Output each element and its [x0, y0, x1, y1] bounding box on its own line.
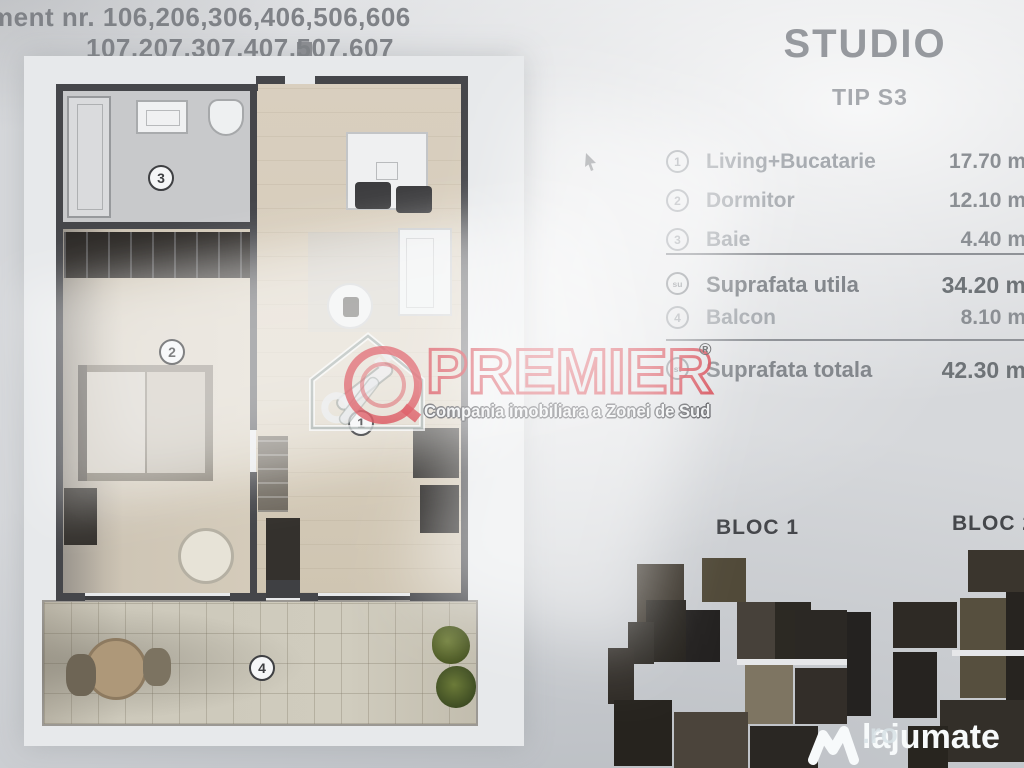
wall	[300, 593, 318, 601]
building-silhouette	[614, 700, 672, 766]
room-area: 8.10 m	[840, 306, 1024, 330]
toilet	[208, 99, 244, 136]
building-silhouette	[847, 612, 871, 716]
building-silhouette	[893, 652, 937, 718]
building-silhouette	[686, 610, 720, 662]
wall	[230, 593, 266, 601]
round-armchair	[178, 528, 234, 584]
wall	[56, 222, 257, 229]
building-gap	[737, 659, 847, 665]
balcony-chair	[66, 654, 96, 696]
lajumate-icon	[806, 722, 860, 766]
dining-chair	[396, 186, 432, 213]
wall	[315, 76, 468, 84]
balcony-chair	[143, 648, 171, 686]
wall	[56, 593, 85, 601]
wall	[256, 76, 285, 84]
building-silhouette	[702, 558, 746, 602]
total-row: st Suprafata totala 42.30 m	[666, 355, 1024, 387]
building-silhouette	[674, 712, 748, 768]
room-area: 4.40 m	[840, 228, 1024, 252]
building-silhouette	[608, 648, 634, 704]
room-row: 4 Balcon 8.10 m	[666, 304, 1024, 336]
plant	[432, 626, 470, 664]
cabinet	[266, 518, 300, 580]
bloc-1-label: BLOC 1	[716, 516, 799, 540]
room-number-badge-balcony: 4	[249, 655, 275, 681]
plant	[436, 666, 476, 708]
apartment-numbers-line1: ment nr. 106,206,306,406,506,606	[0, 2, 411, 33]
sink	[136, 100, 188, 134]
plan-title: STUDIO	[760, 22, 970, 67]
wall	[56, 84, 258, 91]
building-gap	[952, 650, 1024, 656]
building-silhouette	[795, 610, 847, 662]
total-area: 34.20 m	[840, 272, 1024, 299]
total-area: 42.30 m	[840, 357, 1024, 384]
wall	[250, 84, 257, 229]
building-silhouette	[960, 598, 1006, 698]
shower	[67, 96, 111, 218]
building-silhouette	[968, 550, 1024, 592]
total-label: Suprafata utila	[706, 272, 859, 298]
room-number-badge-bathroom: 3	[148, 165, 174, 191]
listing-photo: ment nr. 106,206,306,406,506,606 107,207…	[0, 0, 1024, 768]
building-silhouette	[893, 602, 957, 648]
building-silhouette	[737, 602, 775, 662]
divider	[666, 339, 1024, 341]
dining-chair	[355, 182, 391, 209]
bloc-2-label: BLOC 2	[952, 512, 1024, 536]
room-area: 12.10 m	[840, 189, 1024, 213]
window	[318, 596, 410, 600]
wall	[250, 472, 257, 600]
building-silhouette	[745, 664, 793, 724]
plan-subtitle: TIP S3	[800, 84, 940, 111]
room-area: 17.70 m	[840, 150, 1024, 174]
building-silhouette	[795, 668, 847, 724]
lajumate-tld: .ro	[862, 718, 898, 750]
window	[85, 596, 230, 600]
